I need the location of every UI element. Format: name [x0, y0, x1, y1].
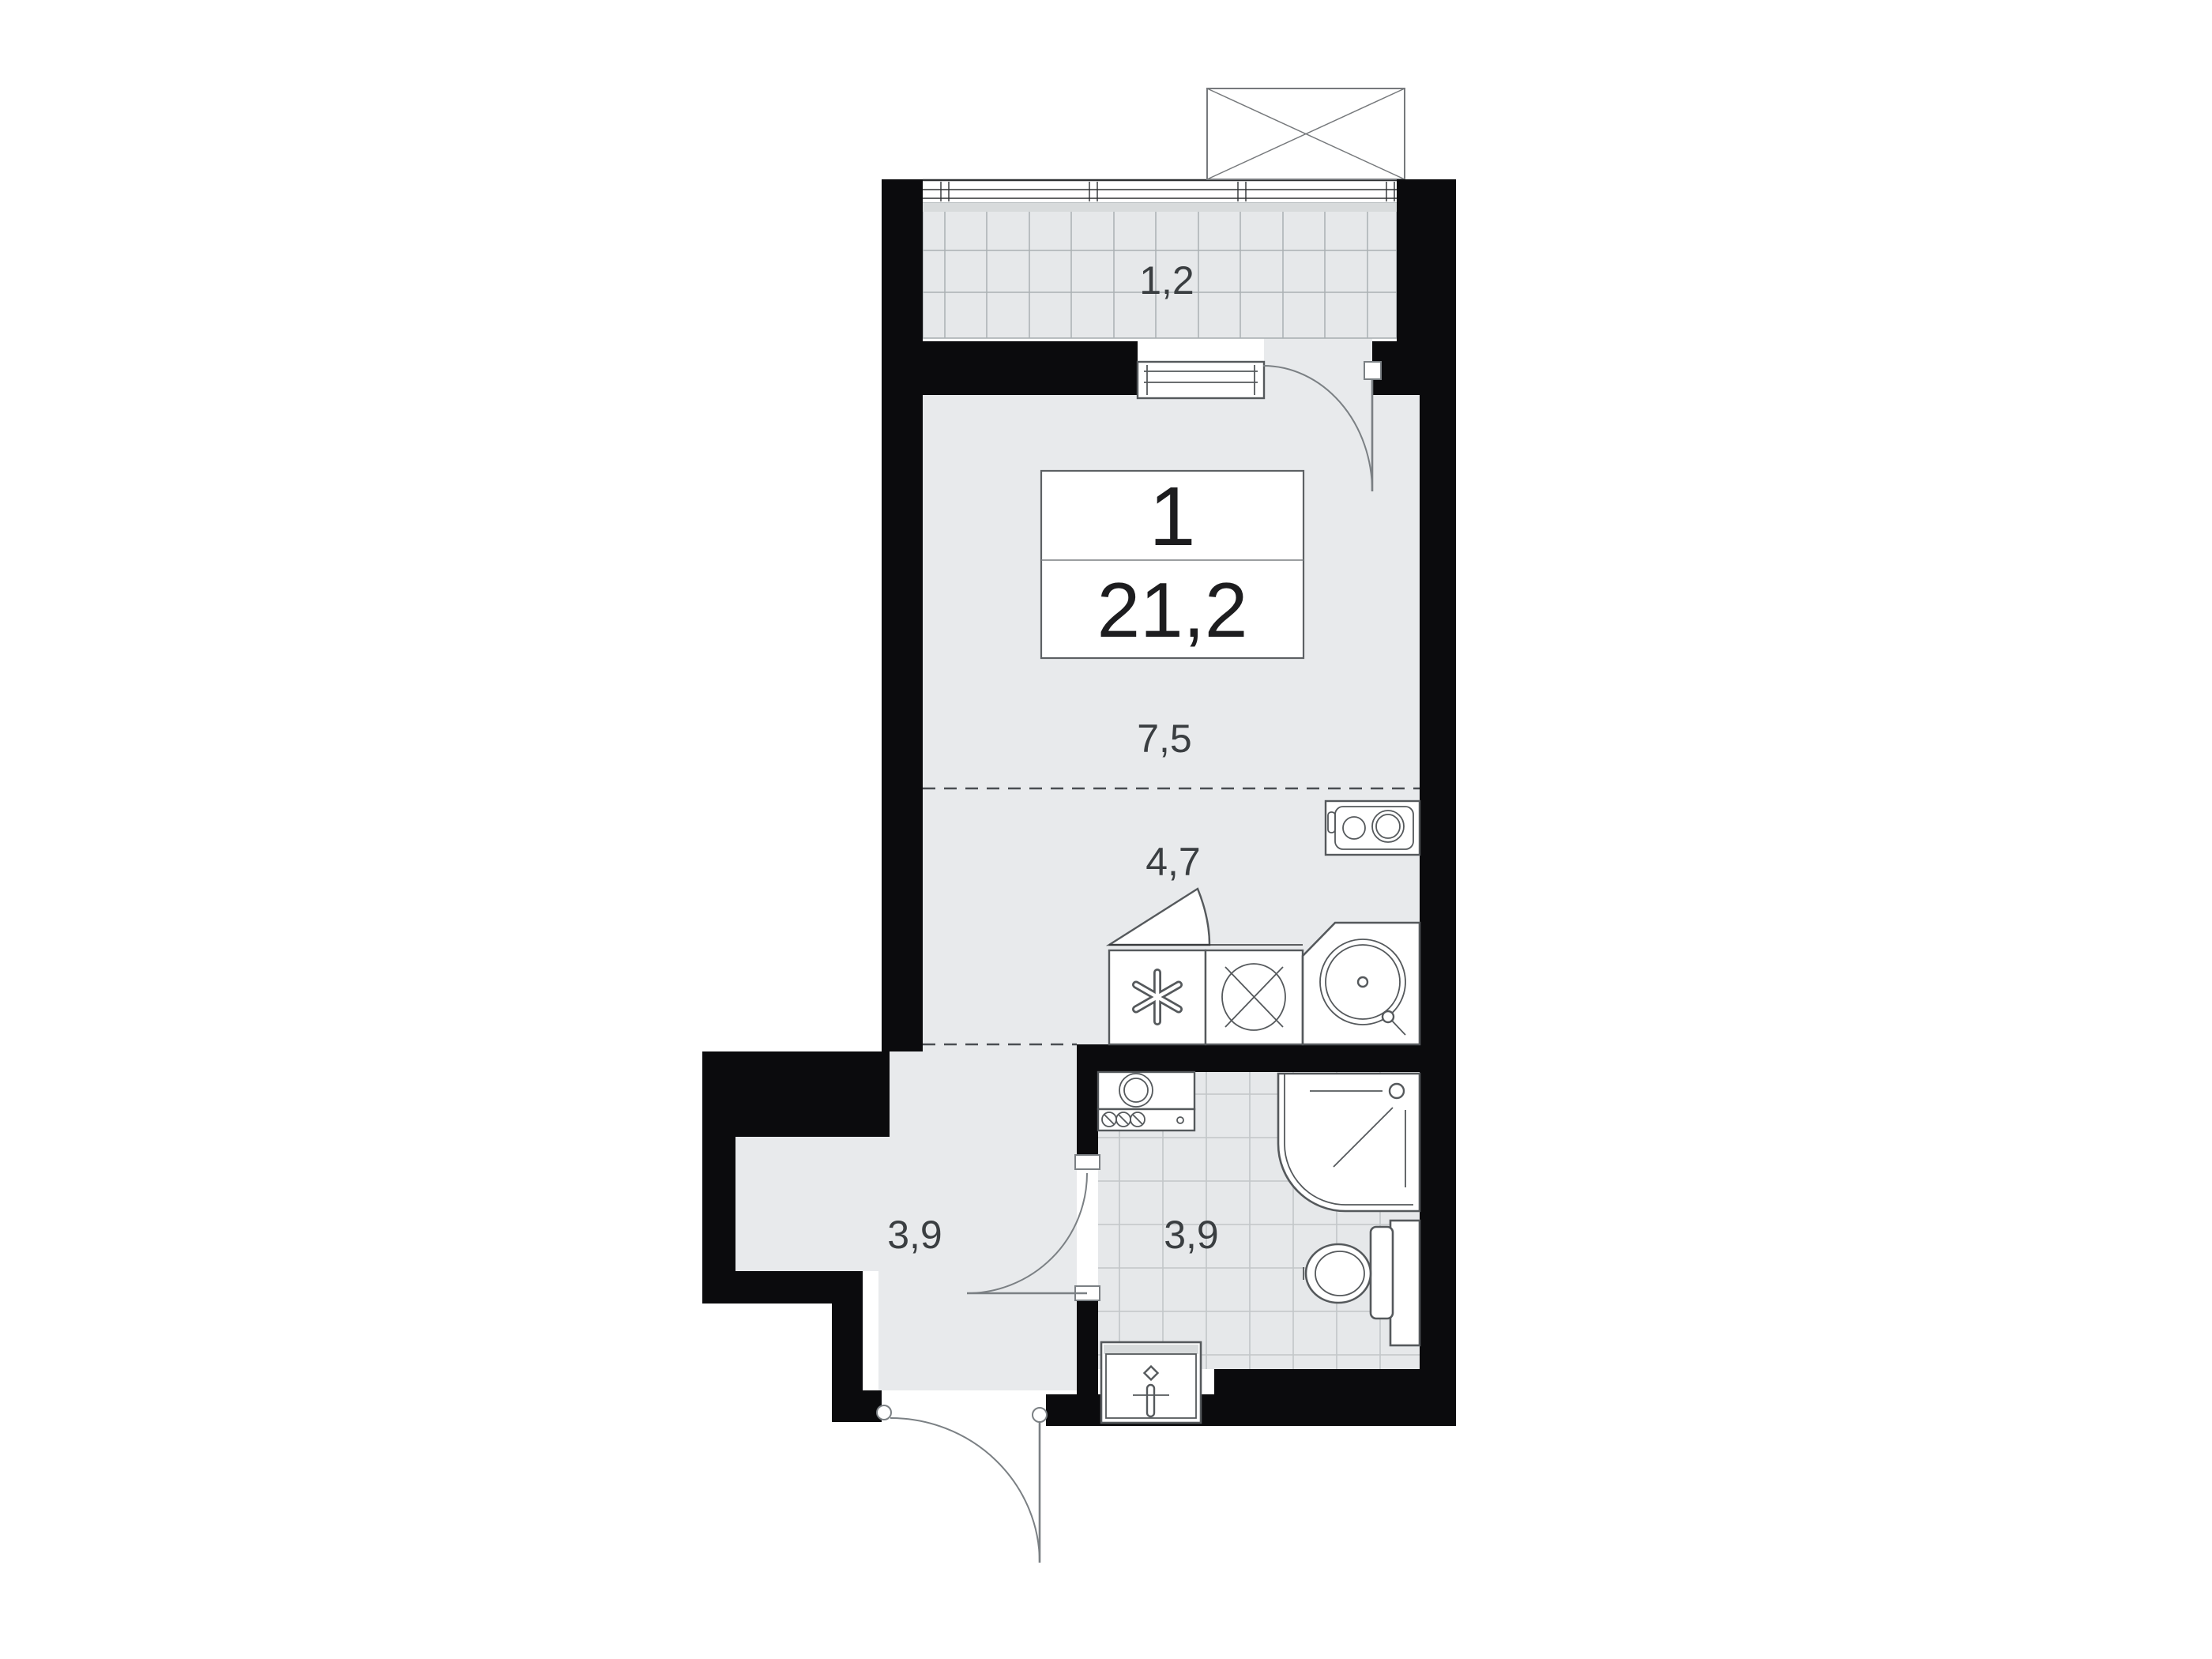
wall-hallway-top	[702, 1051, 890, 1137]
room-label-hallway: 3,9	[887, 1213, 942, 1257]
bathroom-sink-cabinet-icon	[1098, 1072, 1194, 1130]
room-label-balcony: 1,2	[1139, 258, 1194, 303]
wall-left	[882, 179, 923, 1051]
cooktop-icon	[1326, 801, 1420, 855]
bathroom-door-jamb-top	[1075, 1155, 1100, 1169]
unit-info-box: 1 21,2	[1041, 470, 1303, 658]
entrance-door-jamb-left	[877, 1405, 891, 1420]
unit-total-area: 21,2	[1097, 566, 1248, 653]
floor-plan-canvas: 1 21,2 1,2 7,5 4,7 3,9 3,9	[0, 0, 2212, 1659]
entrance-door-arc	[890, 1418, 1040, 1563]
duct-shaft	[1390, 1221, 1420, 1345]
balcony-inner-band	[923, 203, 1397, 212]
wall-top-left-segment	[882, 341, 1138, 395]
balcony-window	[923, 180, 1397, 201]
kitchen-counter	[1109, 945, 1303, 1044]
wall-hallway-left	[702, 1137, 735, 1271]
shower-cabin-icon	[1278, 1074, 1420, 1211]
balcony-door-jamb	[1364, 362, 1381, 379]
bathroom-cabinet-strip	[1098, 1109, 1194, 1130]
entrance-door-jamb-right	[1033, 1408, 1047, 1422]
room-label-kitchen: 4,7	[1145, 840, 1201, 884]
room-label-living: 7,5	[1137, 717, 1192, 761]
floor-plan: 1 21,2 1,2 7,5 4,7 3,9 3,9	[0, 0, 2212, 1659]
wall-right	[1420, 395, 1456, 1426]
balcony-slab-x-box	[1207, 88, 1405, 179]
washbasin-icon	[1101, 1342, 1201, 1423]
unit-rooms-count: 1	[1149, 470, 1196, 563]
entrance-door	[877, 1405, 1047, 1563]
washing-machine-icon	[1303, 923, 1420, 1044]
wall-hallway-bottom-left	[702, 1271, 863, 1303]
room-label-bathroom: 3,9	[1164, 1213, 1219, 1257]
wall-right-balcony	[1397, 179, 1456, 395]
wall-entry-left	[832, 1303, 863, 1422]
balcony-window-sill	[1138, 362, 1264, 398]
wall-bathroom-left-upper	[1077, 1072, 1098, 1157]
wall-bathroom-top	[1077, 1044, 1456, 1072]
